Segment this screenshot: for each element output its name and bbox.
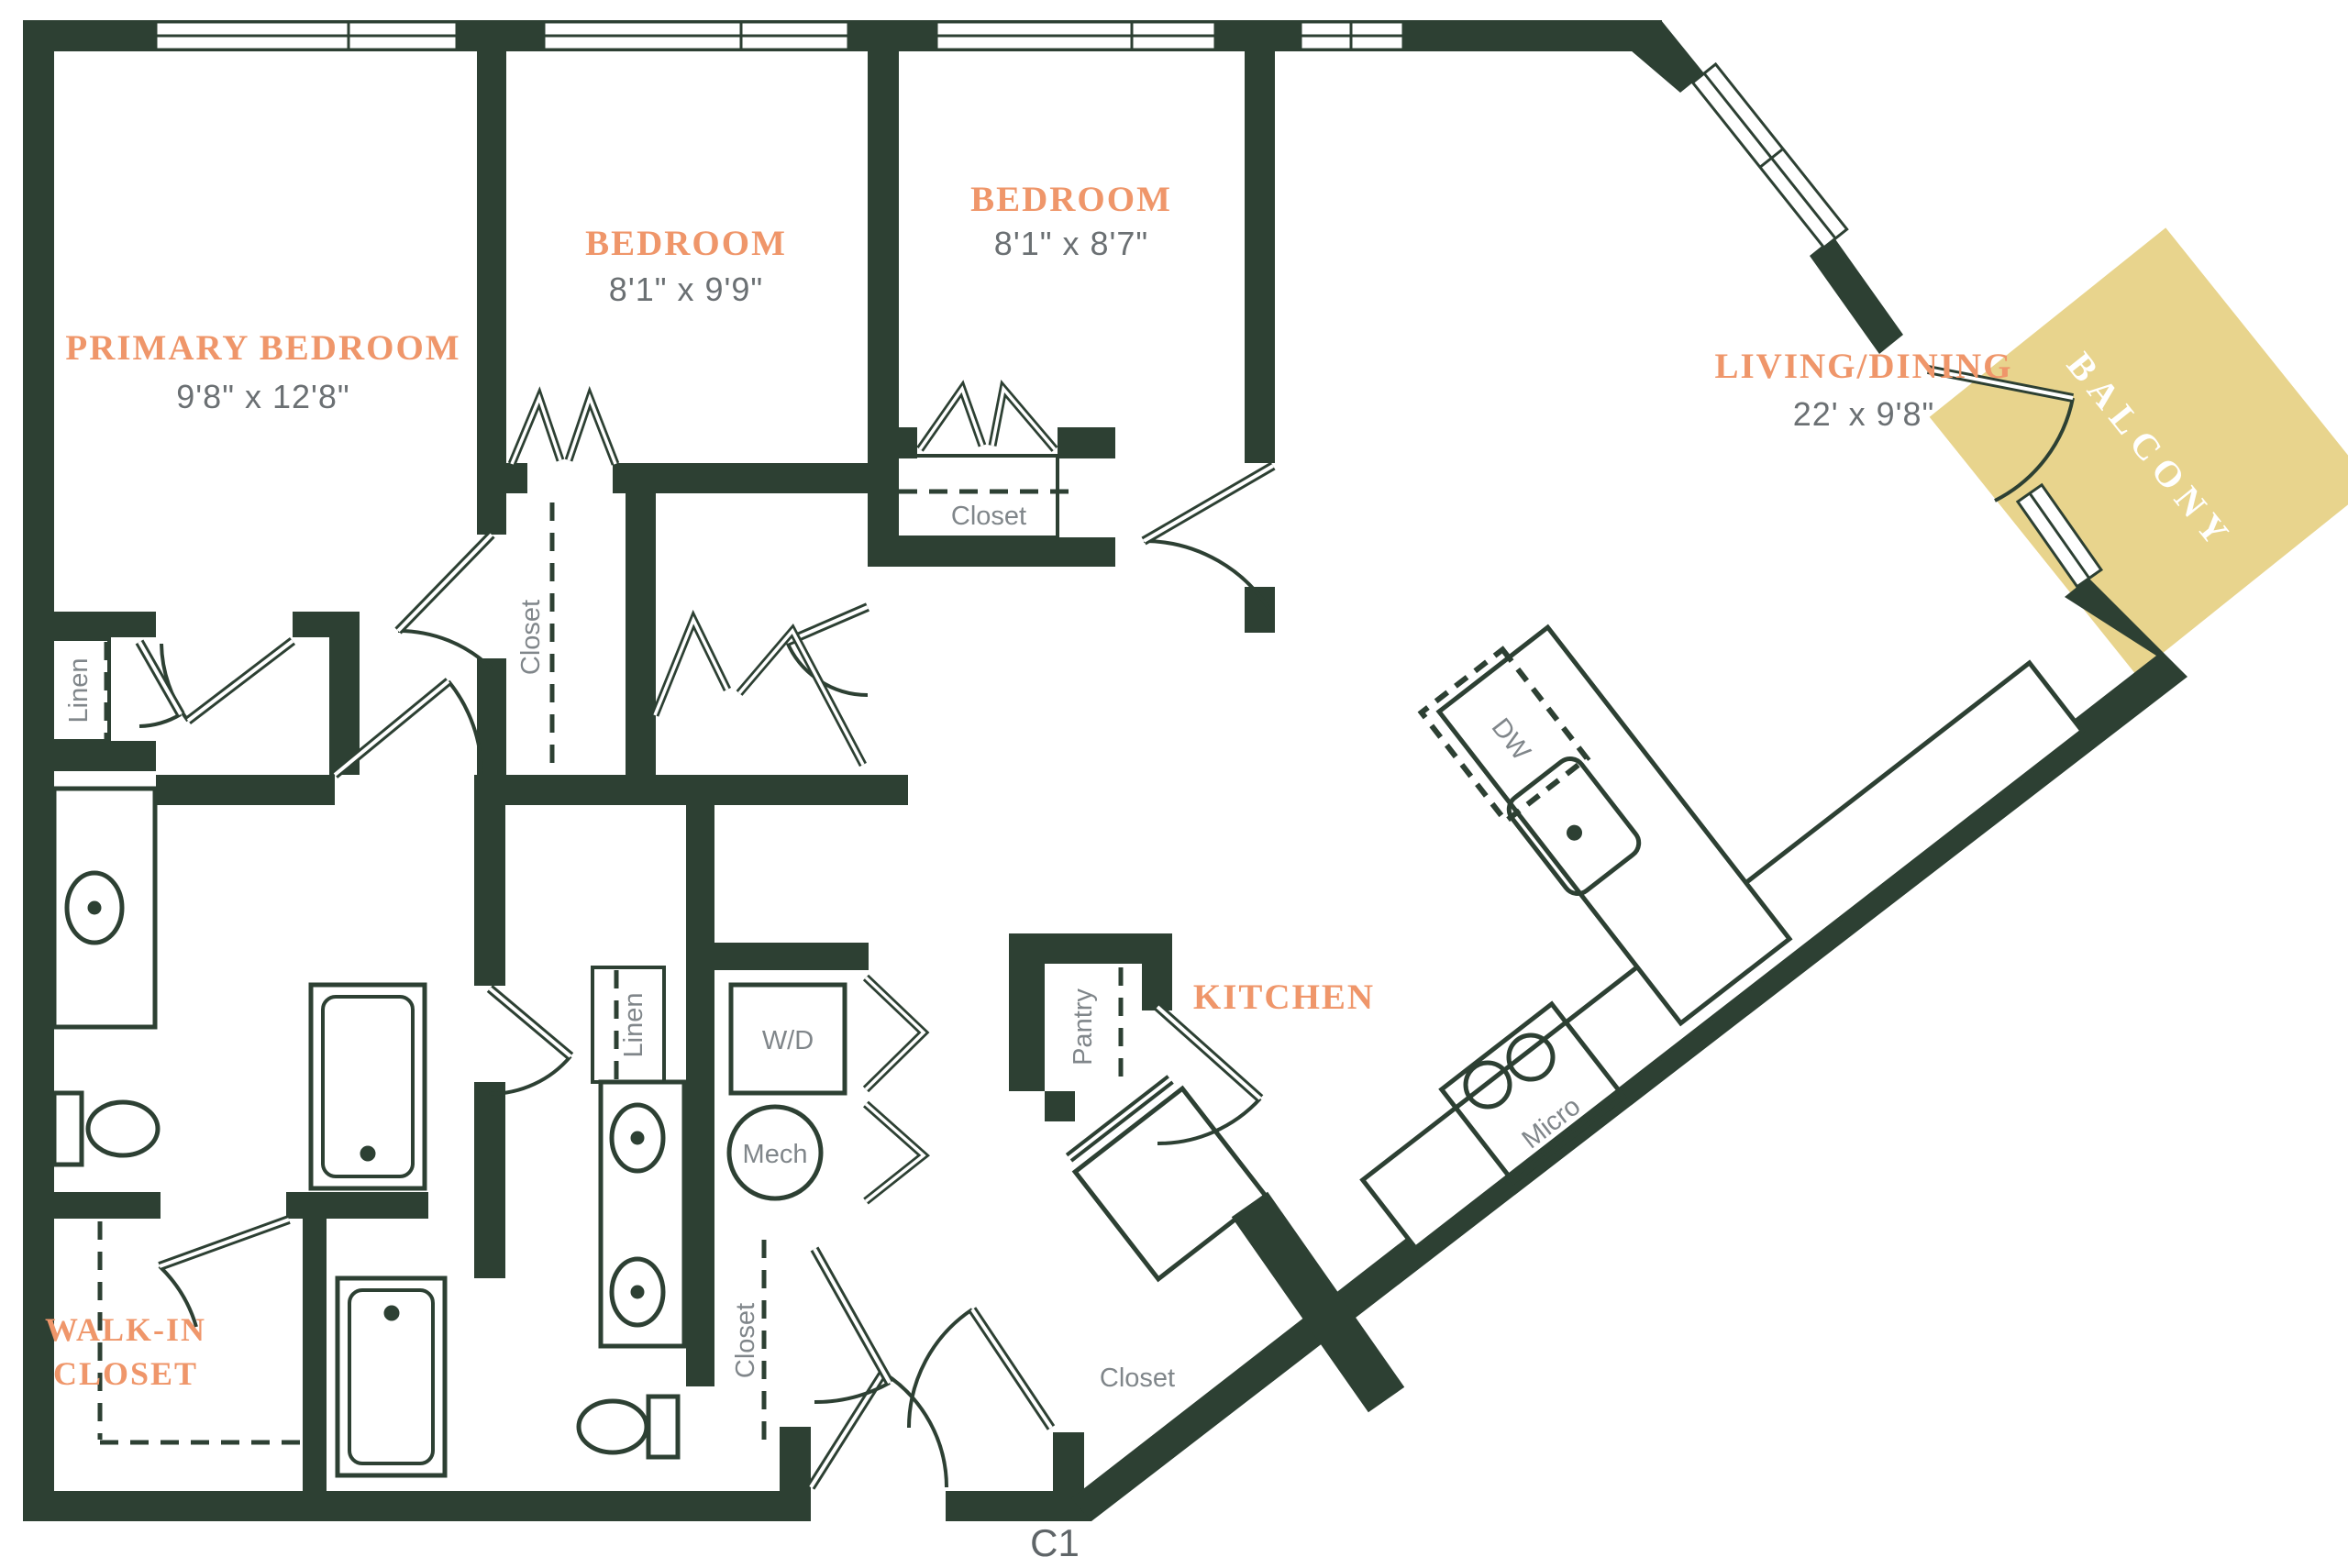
linen-bath2-label: Linen [619, 993, 648, 1058]
wall-hall-south [474, 775, 908, 805]
living-dining-dims: 22' x 9'8" [1793, 395, 1935, 433]
wall-closet-b2-jamb-l [506, 463, 527, 493]
wall-pantry-south-stub [1045, 1091, 1075, 1121]
wall-bedroom3-living [1245, 50, 1275, 463]
windows-top [156, 22, 1403, 50]
tub-primary [311, 985, 425, 1188]
wall-closet-b3-south [868, 537, 1115, 567]
window-bedroom3 [936, 22, 1215, 50]
bifold-wd-closet [866, 977, 924, 1201]
wall-bottom-left [23, 1491, 811, 1521]
wall-entry-jamb-left [780, 1427, 811, 1521]
primary-bedroom-name: PRIMARY BEDROOM [65, 328, 460, 368]
bedroom3-name: BEDROOM [970, 180, 1172, 219]
bifold-closet-bedroom3 [920, 389, 1055, 449]
primary-bedroom-dims: 9'8" x 12'8" [176, 378, 349, 415]
refrigerator [1064, 1074, 1266, 1278]
wall-bath1-south-l [43, 1192, 161, 1219]
wall-closet-b2-east [626, 493, 656, 775]
wall-closet-b3-jamb-l [892, 427, 917, 458]
mechanical-label: Mech [743, 1140, 808, 1169]
wall-primary-south-r [293, 612, 360, 637]
closet-hall-label: Closet [731, 1303, 760, 1378]
kitchen-peninsula [1439, 627, 1789, 1023]
wall-entry-jamb-right [1053, 1432, 1084, 1521]
sink-bath2-a-drain [633, 1133, 642, 1143]
door-bath2 [490, 988, 570, 1094]
bedroom2-name: BEDROOM [585, 224, 787, 263]
windows-ne [1692, 64, 2100, 587]
window-bedroom2 [544, 22, 848, 50]
wall-bath2-west-a [474, 805, 505, 986]
living-dining-name: LIVING/DINING [1714, 347, 2012, 386]
wall-bedroom2-south [626, 463, 868, 493]
bedroom3-dims: 8'1" x 8'7" [994, 225, 1148, 262]
closet-bedroom3-label: Closet [951, 502, 1026, 531]
door-bedroom2 [398, 535, 492, 668]
wall-bath1-north [156, 775, 335, 805]
wall-linen1-south [23, 741, 156, 771]
window-living-top [1301, 22, 1403, 50]
dashed-lines [100, 491, 1121, 1449]
sink-bath2-b-drain [633, 1287, 642, 1297]
fixtures [49, 456, 2082, 1475]
linen-primary-label: Linen [64, 658, 94, 723]
bifold-closet-bedroom2 [512, 398, 615, 464]
toilet-primary [54, 1093, 158, 1165]
wall-primary-south-l [23, 612, 156, 637]
plan-code: C1 [1030, 1521, 1080, 1564]
window-primary [156, 22, 457, 50]
kitchen-name: KITCHEN [1193, 977, 1375, 1017]
balcony-area: BALCONY [1930, 227, 2348, 674]
wall-pantry-hinge [1142, 964, 1172, 1010]
wall-ne-b [1810, 237, 1903, 354]
bifold-laundry-pocket [655, 620, 863, 765]
window-living-ne [1692, 64, 1846, 248]
floor-plan-canvas: BALCONY [0, 0, 2348, 1568]
wall-walkin-east [303, 1192, 327, 1498]
walkin-closet-line2: CLOSET [53, 1355, 198, 1392]
bedroom2-dims: 8'1" x 9'9" [609, 271, 763, 308]
wall-bath2-west-b [474, 1082, 505, 1278]
wall-pantry-north [1009, 933, 1172, 964]
wall-closet-b3-jamb-r [1058, 427, 1115, 458]
wall-primary-bedroom2 [477, 50, 506, 535]
toilet-bath2 [579, 1397, 678, 1457]
door-closet-entry [909, 1309, 1051, 1428]
closet-entry-label: Closet [1100, 1364, 1175, 1393]
sink-primary-drain [90, 903, 99, 912]
door-linen-primary [139, 642, 181, 726]
floor-plan-c1: BALCONY [0, 0, 2348, 1568]
closet-bedroom2-label: Closet [516, 600, 546, 675]
wall-bath2-east [686, 805, 714, 1386]
washer-dryer-label: W/D [762, 1026, 814, 1055]
walkin-closet-line1: WALK-IN [45, 1311, 206, 1348]
wall-wd-north [714, 943, 869, 970]
tub-bath2 [338, 1278, 445, 1475]
pantry-label: Pantry [1069, 988, 1098, 1066]
